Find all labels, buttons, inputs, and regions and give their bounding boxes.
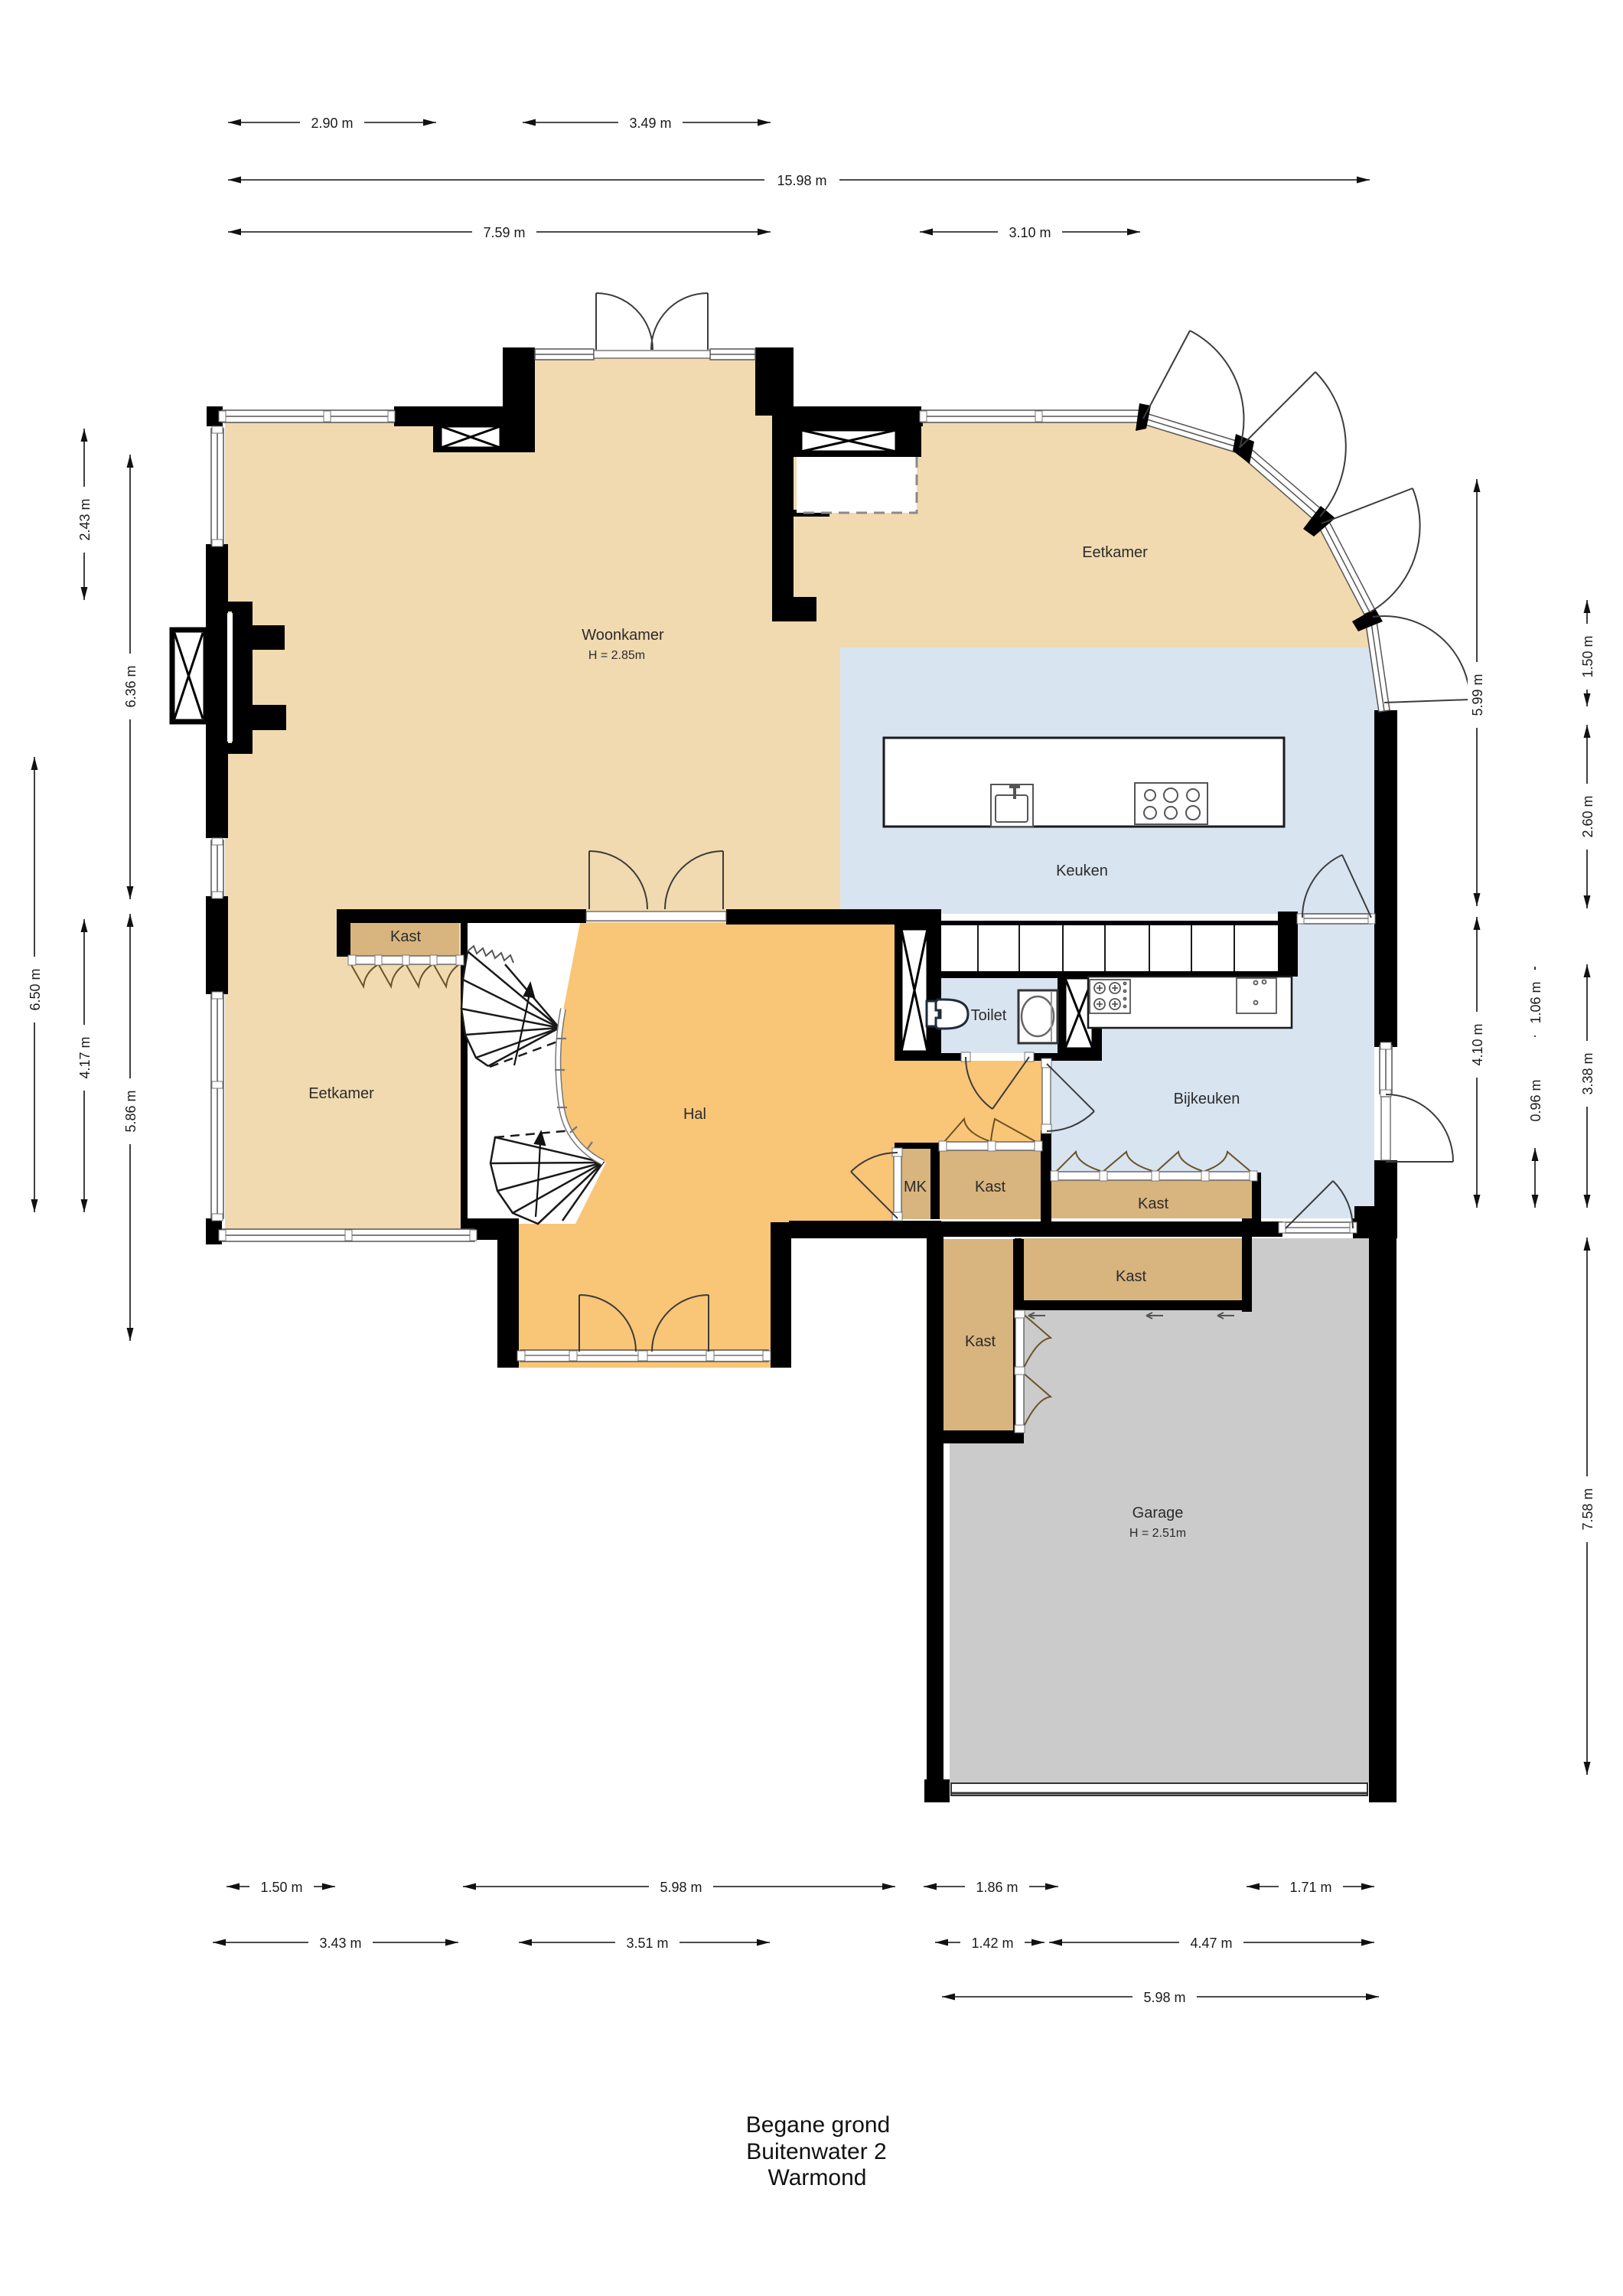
svg-text:4.17 m: 4.17 m [77, 1036, 93, 1078]
svg-text:Kast: Kast [965, 1333, 996, 1350]
svg-text:5.99 m: 5.99 m [1470, 673, 1485, 716]
svg-text:2.43 m: 2.43 m [77, 498, 93, 540]
svg-text:1.42 m: 1.42 m [971, 1936, 1013, 1951]
svg-text:1.50 m: 1.50 m [1580, 635, 1595, 677]
svg-text:1.71 m: 1.71 m [1289, 1880, 1331, 1895]
svg-text:H = 2.51m: H = 2.51m [1129, 1527, 1186, 1540]
svg-text:6.50 m: 6.50 m [28, 968, 43, 1010]
svg-text:3.51 m: 3.51 m [626, 1936, 668, 1951]
svg-text:7.59 m: 7.59 m [483, 225, 525, 240]
svg-text:H = 2.85m: H = 2.85m [588, 649, 645, 662]
svg-text:3.38 m: 3.38 m [1580, 1052, 1595, 1094]
svg-text:7.58 m: 7.58 m [1580, 1488, 1595, 1530]
svg-text:1.50 m: 1.50 m [260, 1880, 302, 1895]
svg-text:3.49 m: 3.49 m [629, 116, 671, 131]
svg-text:Kast: Kast [1116, 1268, 1146, 1285]
svg-text:6.36 m: 6.36 m [123, 665, 139, 707]
svg-text:Bijkeuken: Bijkeuken [1174, 1091, 1240, 1107]
svg-text:0.96 m: 0.96 m [1528, 1079, 1543, 1121]
svg-text:Kast: Kast [390, 928, 421, 945]
svg-text:Warmond: Warmond [768, 2165, 867, 2190]
svg-text:Hal: Hal [683, 1106, 706, 1123]
svg-text:4.10 m: 4.10 m [1470, 1023, 1485, 1065]
svg-text:1.06 m: 1.06 m [1528, 981, 1543, 1023]
svg-text:Keuken: Keuken [1056, 863, 1108, 879]
svg-text:Buitenwater 2: Buitenwater 2 [746, 2139, 886, 2164]
svg-text:Garage: Garage [1133, 1505, 1184, 1521]
svg-text:2.60 m: 2.60 m [1580, 795, 1595, 837]
svg-text:2.90 m: 2.90 m [311, 116, 353, 131]
svg-text:3.43 m: 3.43 m [319, 1936, 361, 1951]
svg-text:MK: MK [904, 1179, 927, 1195]
svg-text:4.47 m: 4.47 m [1190, 1936, 1232, 1951]
svg-text:15.98 m: 15.98 m [777, 173, 826, 188]
svg-text:Kast: Kast [1138, 1195, 1168, 1212]
svg-text:Woonkamer: Woonkamer [582, 627, 664, 644]
svg-text:3.10 m: 3.10 m [1009, 225, 1051, 240]
svg-text:5.98 m: 5.98 m [1143, 1990, 1185, 2005]
svg-text:Eetkamer: Eetkamer [1082, 544, 1148, 561]
svg-text:Toilet: Toilet [971, 1007, 1007, 1024]
svg-text:Begane grond: Begane grond [746, 2112, 891, 2138]
svg-text:5.86 m: 5.86 m [123, 1090, 139, 1132]
svg-text:1.86 m: 1.86 m [976, 1880, 1018, 1895]
svg-text:5.98 m: 5.98 m [660, 1880, 702, 1895]
svg-text:Eetkamer: Eetkamer [308, 1085, 374, 1102]
svg-text:Kast: Kast [975, 1179, 1005, 1195]
